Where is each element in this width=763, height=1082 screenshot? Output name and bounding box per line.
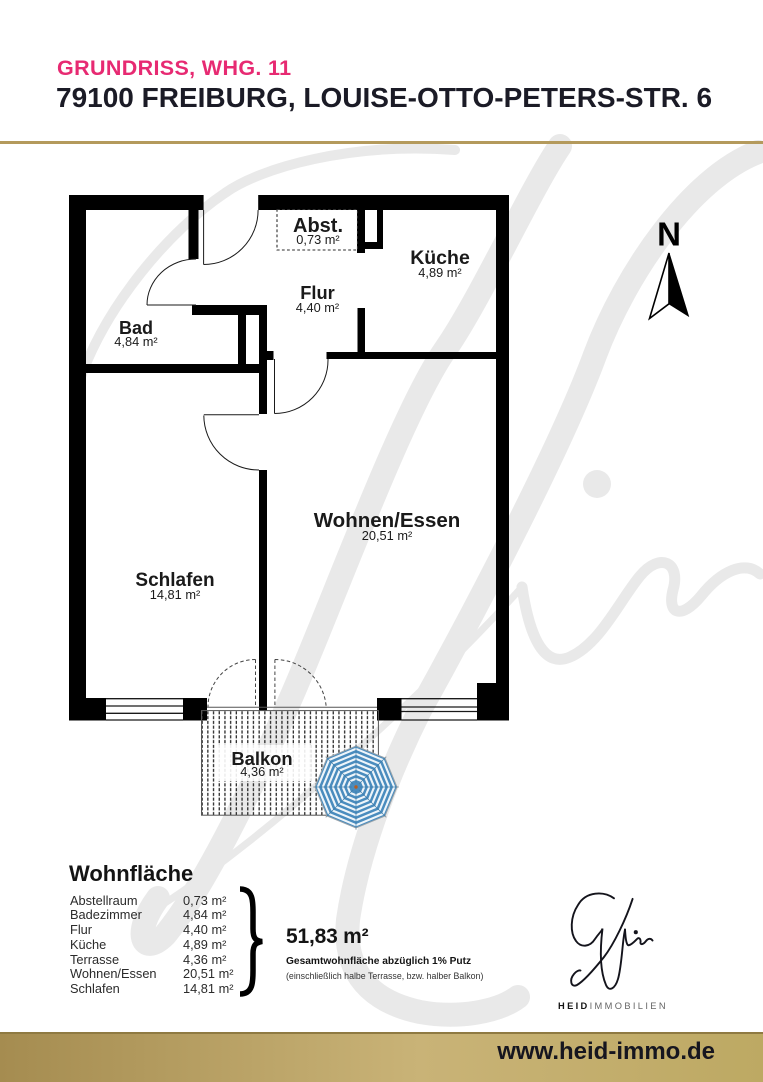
svg-text:N: N bbox=[657, 216, 681, 253]
